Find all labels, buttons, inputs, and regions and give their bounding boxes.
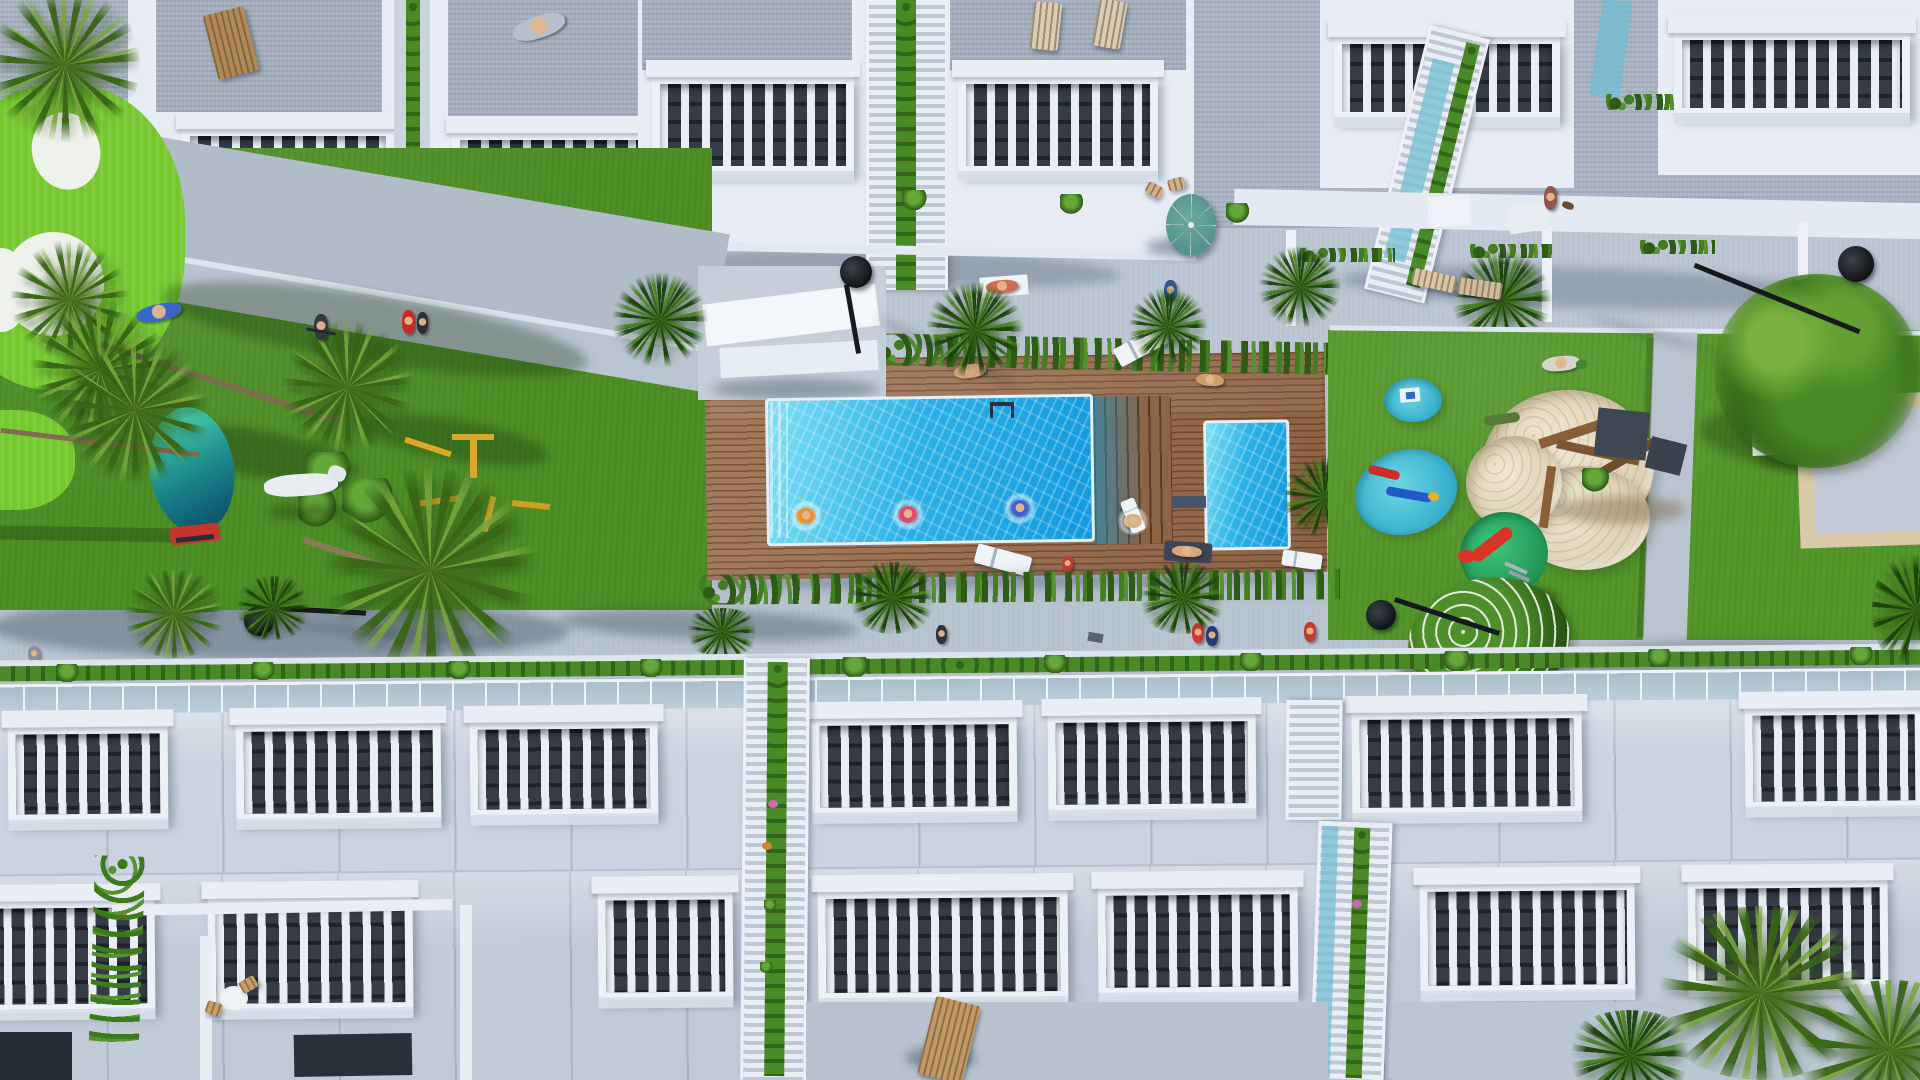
- walkway-pot-plant-4: [1226, 203, 1252, 223]
- balcony-railing-f: [1674, 32, 1910, 116]
- street-palm-5: [1135, 562, 1230, 634]
- corridor-2-flower: [1352, 900, 1362, 908]
- planter-top-right: [1606, 94, 1676, 110]
- walkway-palm-2: [925, 282, 1025, 378]
- lamp-right-head: [1838, 246, 1874, 282]
- street-palm-cluster-1: [118, 570, 230, 658]
- townhouse-railing-r1-3: [470, 720, 659, 818]
- person-walkway-red: [402, 310, 415, 334]
- play-structure-shadow: [1556, 496, 1686, 524]
- hedge-tuft-2: [252, 662, 278, 680]
- balcony-railing-d: [958, 76, 1158, 174]
- exercise-post-1: [470, 438, 477, 478]
- townhouse-railing-r1-2: [236, 722, 442, 822]
- swimmer-3: [1010, 500, 1030, 517]
- corridor-flower-pink: [768, 800, 778, 808]
- townhouse-railing-r2-6: [1420, 882, 1636, 994]
- pool-entry-steps: [770, 402, 788, 538]
- hedge-tuft-7: [1240, 653, 1266, 671]
- street-palm-cluster-2: [232, 576, 314, 640]
- cube-bench-2: [1506, 201, 1548, 234]
- rooftop-center: [806, 1002, 1328, 1080]
- kids-pool: [1203, 419, 1291, 550]
- townhouse-railing-r2-4: [818, 889, 1069, 1001]
- townhouse-railing-r1-7: [1745, 706, 1920, 810]
- rooftop-left-slab-3: [460, 905, 472, 1080]
- street-palm-4: [845, 562, 940, 634]
- deck-lamp-head: [840, 256, 872, 288]
- hedge-tuft-10: [1850, 647, 1876, 665]
- hedge-tuft-9: [1648, 649, 1674, 667]
- play-toy-blue: [1406, 392, 1416, 400]
- deck-hedge-south: [700, 569, 1340, 605]
- walkway-palm-3: [1128, 288, 1208, 366]
- climbing-vine: [89, 855, 146, 1049]
- person-walkway-right: [1544, 186, 1557, 210]
- aerial-residential-render: Aerial 3D render of residential complex …: [0, 0, 1920, 1080]
- play-bush: [1582, 468, 1612, 492]
- corridor-plant-1: [764, 900, 778, 911]
- swimmer-on-steps: [1124, 514, 1142, 528]
- townhouse-railing-r1-4: [812, 716, 1018, 816]
- palm-left-d: [280, 320, 415, 455]
- slide-red-cap: [1458, 550, 1475, 563]
- roof-opening-dark-1: [0, 1032, 72, 1080]
- person-walkway-dark: [417, 312, 428, 334]
- roof-terrace-a: [156, 0, 382, 112]
- street-lamp-b: [1366, 600, 1396, 630]
- person-street-3: [1206, 626, 1218, 646]
- person-street-4: [1304, 622, 1316, 642]
- person-deck-edge: [1062, 556, 1073, 572]
- townhouse-railing-r1-5: [1048, 713, 1257, 813]
- townhouse-railing-r1-6: [1352, 710, 1583, 816]
- walkway-palm-4: [1258, 246, 1342, 328]
- hedge-tuft-3: [448, 661, 474, 679]
- roof-lounger-d1: [1030, 1, 1063, 52]
- walkway-pot-plant-2: [902, 190, 930, 210]
- corridor-flower-orange: [762, 842, 772, 850]
- townhouse-railing-r2-3: [598, 891, 734, 1000]
- swimmer-2: [898, 506, 918, 523]
- stair-corridor-2a: [1285, 700, 1342, 820]
- swimmer-1: [796, 508, 816, 524]
- street-palm-big: [318, 468, 543, 673]
- street-palm-3: [680, 608, 764, 656]
- leafy-tree-right: [1714, 274, 1920, 468]
- stair-corridor-1-green: [764, 662, 788, 1076]
- palm-left-c: [60, 335, 210, 485]
- hedge-tuft-8: [1444, 651, 1474, 671]
- patio-umbrella: [1166, 194, 1216, 256]
- cube-bench-1: [1427, 195, 1471, 227]
- hedge-tuft-1: [56, 664, 82, 682]
- hedge-tuft-6: [1044, 655, 1070, 673]
- pool-ladder-left: [990, 402, 993, 418]
- roof-opening-dark-2: [294, 1033, 413, 1077]
- townhouse-railing-r1-1: [8, 725, 169, 822]
- pool-connector: [1172, 496, 1206, 509]
- play-roof-1: [1594, 407, 1651, 460]
- person-street-1: [936, 625, 947, 644]
- corridor-plant-2: [760, 962, 774, 973]
- hedge-tuft-5: [842, 657, 872, 677]
- walkway-palm-1: [612, 272, 708, 368]
- person-with-bike: [314, 314, 328, 340]
- hedge-tuft-4: [640, 659, 666, 677]
- terrace-planter-3: [1640, 240, 1715, 254]
- bag-green: [1576, 360, 1587, 369]
- pool-ladder-right: [1011, 402, 1014, 418]
- townhouse-railing-r2-5: [1098, 886, 1299, 996]
- walkway-pot-plant-3: [1060, 194, 1086, 214]
